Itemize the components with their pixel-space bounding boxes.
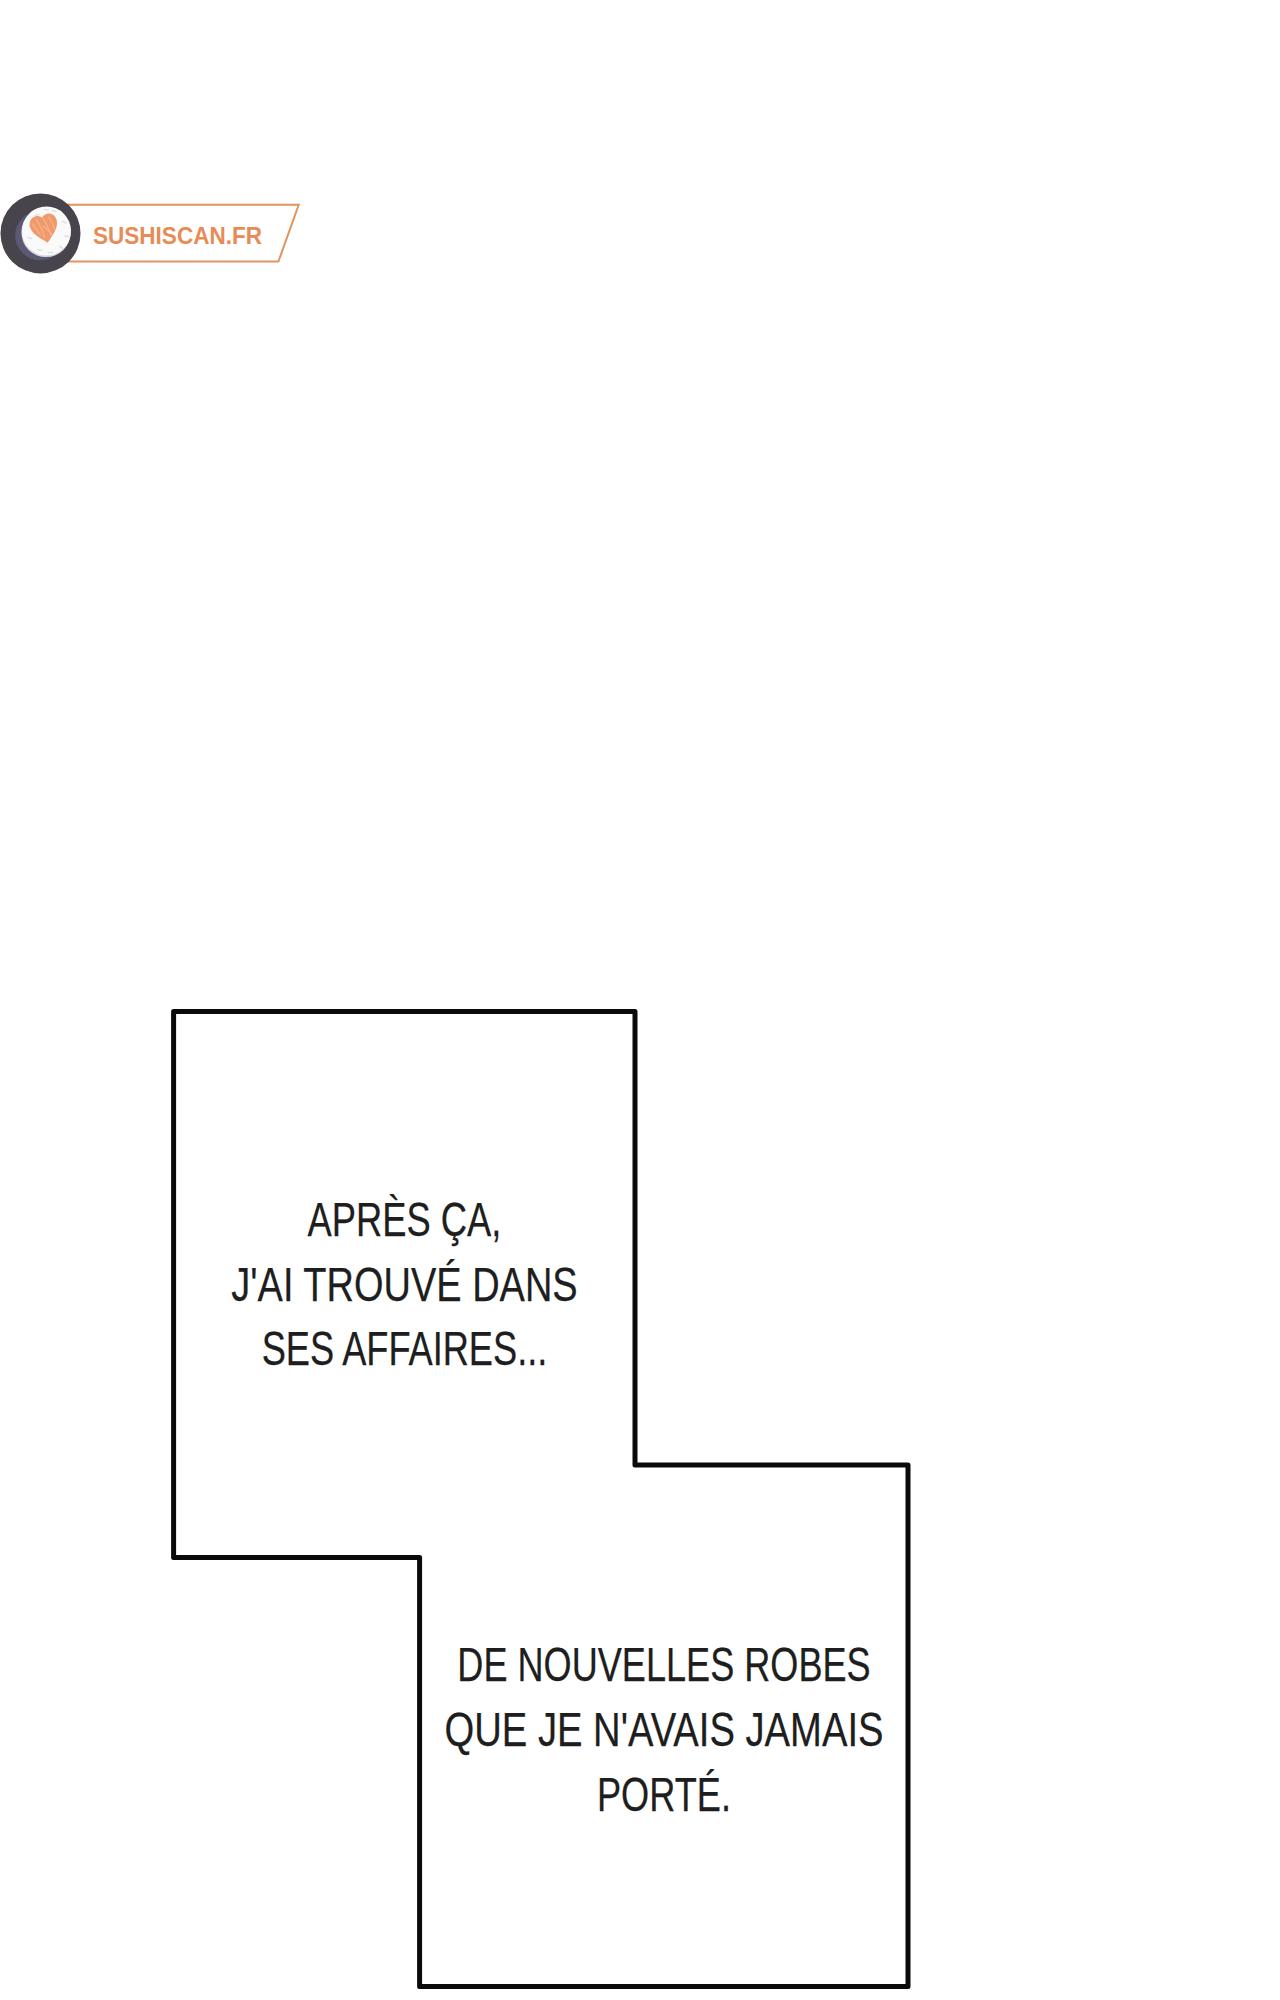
- svg-text:SUSHISCAN.FR: SUSHISCAN.FR: [93, 223, 262, 249]
